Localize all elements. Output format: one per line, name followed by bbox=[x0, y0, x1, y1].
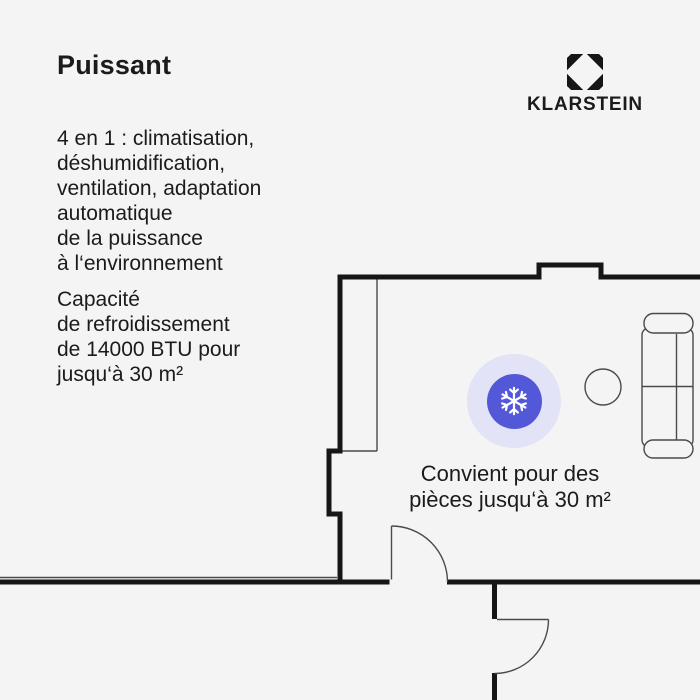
side-table-circle bbox=[585, 369, 621, 405]
caption-line: pièces jusqu‘à 30 m² bbox=[360, 487, 660, 513]
infographic-canvas: Puissant KLARSTEIN 4 en 1 : climatisatio… bbox=[0, 0, 700, 700]
sofa-armrest-top bbox=[644, 314, 693, 334]
door-swing-arc-bottom bbox=[392, 526, 448, 582]
floor-plan bbox=[0, 0, 700, 700]
cooling-zone-halo bbox=[467, 354, 561, 448]
caption-line: Convient pour des bbox=[360, 461, 660, 487]
snowflake-icon bbox=[497, 384, 531, 418]
cooling-badge bbox=[487, 374, 542, 429]
room-size-caption: Convient pour des pièces jusqu‘à 30 m² bbox=[360, 461, 660, 513]
sofa-body bbox=[642, 328, 693, 447]
door-swing-arc-lower bbox=[495, 620, 549, 674]
sofa-armrest-bottom bbox=[644, 440, 693, 458]
